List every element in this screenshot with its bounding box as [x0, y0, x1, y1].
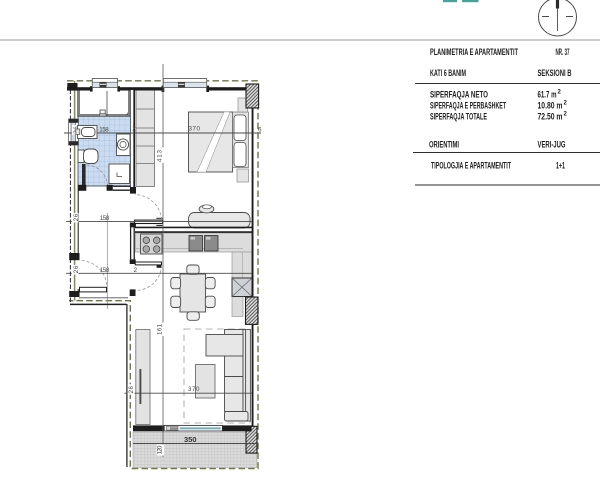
- svg-text:SEKSIONI B: SEKSIONI B: [538, 68, 572, 78]
- svg-text:1+1: 1+1: [556, 161, 565, 171]
- svg-text:SIPERFAQJA NETO: SIPERFAQJA NETO: [430, 90, 488, 100]
- svg-text:ORIENTIMI: ORIENTIMI: [429, 140, 459, 150]
- svg-text:161: 161: [156, 323, 163, 335]
- svg-text:413: 413: [156, 149, 163, 162]
- svg-text:6: 6: [258, 126, 262, 133]
- svg-text:158: 158: [100, 267, 110, 274]
- svg-text:26: 26: [73, 265, 80, 273]
- svg-text:VERI-JUG: VERI-JUG: [538, 140, 566, 150]
- svg-text:2: 2: [132, 126, 136, 133]
- svg-text:370: 370: [188, 386, 200, 393]
- svg-text:SIPERFAQJA E PERBASHKET: SIPERFAQJA E PERBASHKET: [430, 101, 506, 111]
- svg-text:SIPERFAQJA TOTALE: SIPERFAQJA TOTALE: [430, 111, 487, 121]
- svg-text:KATI 6 BANIM: KATI 6 BANIM: [430, 68, 466, 78]
- svg-text:370: 370: [189, 126, 201, 133]
- svg-text:PLANIMETRIA E APARTAMENTIT: PLANIMETRIA E APARTAMENTIT: [430, 47, 518, 57]
- svg-text:TIPOLOGJIA E APARTAMENTIT: TIPOLOGJIA E APARTAMENTIT: [431, 161, 511, 171]
- svg-text:350: 350: [184, 437, 197, 444]
- svg-text:158: 158: [100, 215, 110, 222]
- svg-text:158: 158: [99, 126, 109, 133]
- svg-text:120: 120: [156, 445, 163, 455]
- svg-text:10.80 m: 10.80 m: [538, 101, 563, 111]
- svg-text:26: 26: [128, 385, 135, 393]
- svg-text:26: 26: [73, 213, 80, 221]
- svg-text:2: 2: [134, 267, 138, 274]
- svg-text:72.50 m: 72.50 m: [538, 111, 563, 121]
- svg-text:61.7 m: 61.7 m: [538, 90, 557, 100]
- svg-text:NR. 37: NR. 37: [556, 47, 570, 57]
